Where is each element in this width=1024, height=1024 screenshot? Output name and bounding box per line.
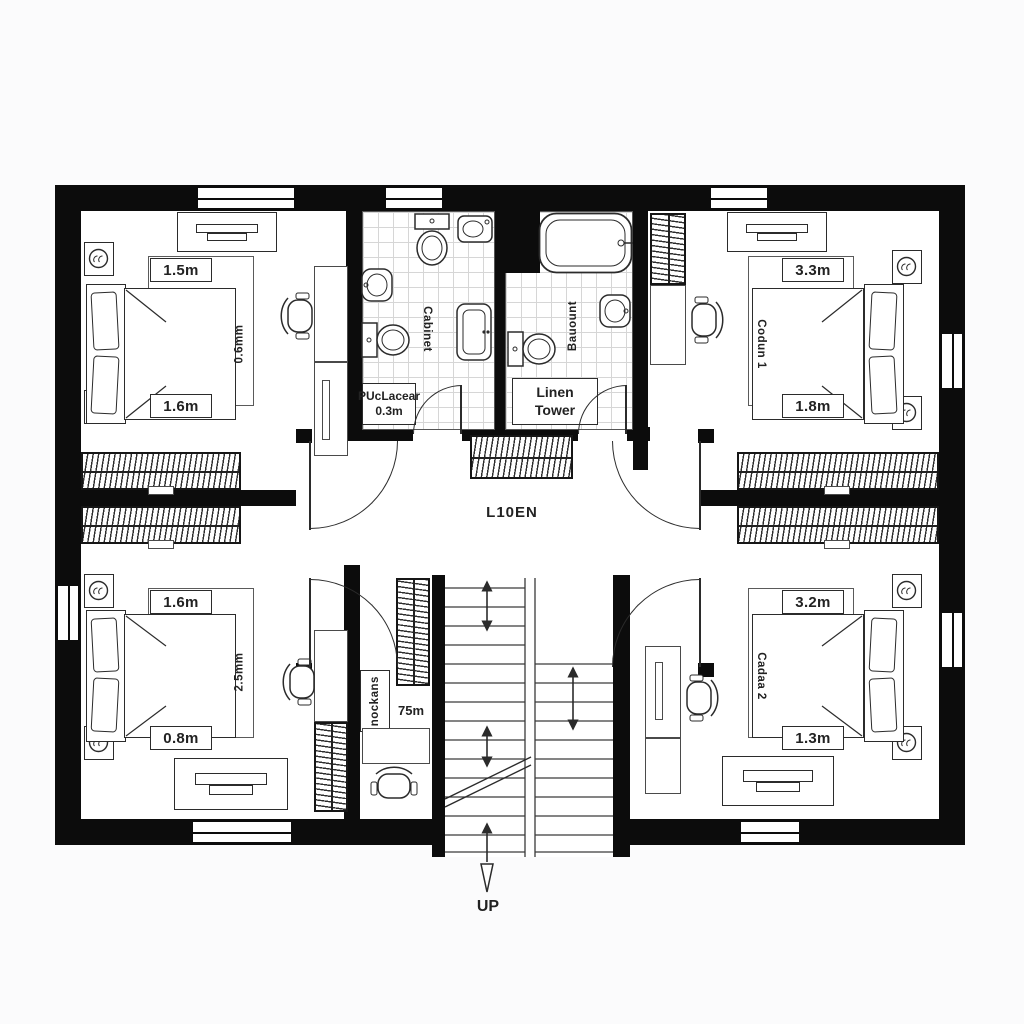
door-leaf [309, 578, 311, 667]
wardrobe [650, 213, 686, 285]
window [57, 585, 79, 641]
door-leaf [699, 578, 701, 667]
dresser [177, 212, 277, 252]
note-line1: PUcLacear [358, 389, 420, 404]
linen-line1: Linen [536, 384, 573, 402]
door-leaf [699, 441, 701, 530]
bed-length-label: 1.3m [782, 726, 844, 750]
ceiling-light-icon [892, 250, 922, 284]
bathroom-right-label: Bauount [562, 290, 584, 362]
stairs-up-label: UP [466, 896, 510, 918]
window [192, 821, 292, 843]
wardrobe [81, 506, 241, 544]
bed-depth-label: 0.6mm [228, 308, 250, 380]
bed-depth-label: 2.5mm [228, 636, 250, 708]
bed-width-label: 3.3m [782, 258, 844, 282]
wardrobe [737, 506, 939, 544]
bed-width-label: 3.2m [782, 590, 844, 614]
window [941, 333, 963, 389]
window [710, 187, 768, 209]
monitor [322, 380, 330, 440]
wardrobe [314, 722, 348, 812]
door-leaf [309, 441, 311, 530]
wall-stairs-left [432, 575, 445, 857]
toilet-icon [360, 316, 412, 364]
sink-icon [456, 214, 494, 244]
room-name-label: Codun 1 [750, 304, 772, 384]
pillow [91, 355, 120, 414]
wardrobe [737, 452, 939, 490]
pillow [869, 617, 898, 672]
window [197, 187, 295, 209]
sink-icon [360, 266, 396, 304]
monitor [655, 662, 663, 720]
toilet-icon [506, 325, 558, 373]
window [740, 821, 800, 843]
window [385, 187, 443, 209]
room-name-label: Cadaa 2 [750, 636, 772, 716]
wall-left [55, 185, 81, 845]
wall-between-baths [495, 273, 505, 430]
office-chair-icon [681, 674, 721, 722]
closet-tab [148, 486, 174, 495]
blanket-fold-lines [124, 614, 236, 738]
wardrobe [396, 578, 430, 686]
up-arrow-outline [481, 864, 493, 892]
toilet-icon [408, 212, 456, 270]
window [941, 612, 963, 668]
bathroom-left-note: PUcLacear 0.3m [362, 383, 416, 425]
wall-hall-left [81, 490, 296, 506]
bed-length-label: 0.8m [150, 726, 212, 750]
wall-tub-alcove [495, 207, 540, 273]
dresser [727, 212, 827, 252]
bathroom-left-label: Cabinet [416, 294, 438, 364]
bed-length-label: 1.8m [782, 394, 844, 418]
closet-tab [824, 486, 850, 495]
pillow [91, 617, 120, 672]
bathtub-icon [538, 212, 634, 274]
sink-icon [596, 292, 632, 330]
vanity-icon [454, 302, 494, 362]
desk [362, 728, 430, 764]
store-label-box: nockans [360, 670, 390, 732]
dresser [174, 758, 288, 810]
wall-right [939, 185, 965, 845]
closet-tab [148, 540, 174, 549]
pillow [91, 677, 120, 732]
hall-label: L10EN [468, 502, 556, 522]
desk [650, 285, 686, 365]
pillow [869, 677, 898, 732]
ceiling-light-icon [84, 574, 114, 608]
bed-width-label: 1.5m [150, 258, 212, 282]
floor-plan: Cabinet PUcLacear 0.3m Bauount Linen Tow… [0, 0, 1024, 1024]
desk [314, 266, 348, 362]
pillow [869, 355, 898, 414]
bed-width-label: 1.6m [150, 590, 212, 614]
pillow [869, 291, 898, 350]
closet-tab [824, 540, 850, 549]
office-chair-icon [370, 764, 418, 804]
door-leaf [625, 385, 627, 434]
ceiling-light-icon [892, 574, 922, 608]
hall-closet [470, 435, 573, 479]
store-area-label: 75m [390, 700, 432, 720]
door-leaf [460, 385, 462, 434]
ceiling-light-icon [84, 242, 114, 276]
wall-hall-right [700, 490, 939, 506]
stairwell-floor-extension [445, 819, 613, 857]
desk-cabinet [645, 738, 681, 794]
pillow [91, 291, 120, 350]
linen-line2: Tower [535, 402, 575, 420]
note-line2: 0.3m [375, 404, 402, 419]
bed-length-label: 1.6m [150, 394, 212, 418]
office-chair-icon [686, 296, 726, 344]
office-chair-icon [278, 292, 318, 340]
dresser [722, 756, 834, 806]
wardrobe [81, 452, 241, 490]
